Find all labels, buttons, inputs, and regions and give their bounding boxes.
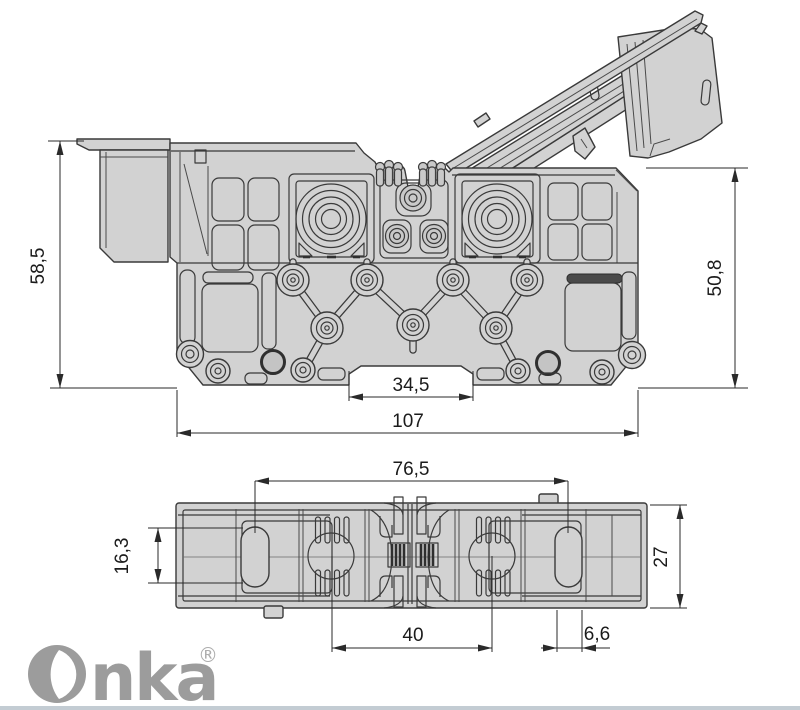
dimension-mounting-slot-width: 6,6 [541,610,610,652]
registered-trademark-symbol: ® [198,643,218,667]
dimension-label-50-8: 50,8 [705,260,726,297]
side-view: 58,5 50,8 34,5 107 [28,11,748,437]
drawing-canvas: 58,5 50,8 34,5 107 [0,0,800,710]
dimension-label-107: 107 [392,411,424,432]
dimension-label-40: 40 [402,625,423,646]
marker-tab-bottom [264,606,283,618]
dimension-label-34-5: 34,5 [393,375,430,396]
mounting-slot-left [241,527,269,587]
dimension-body-height-right: 50,8 [638,168,748,388]
dimension-label-58-5: 58,5 [28,248,49,285]
side-view-body [170,143,646,385]
cover-end-block [618,28,722,158]
left-flange [77,139,170,262]
through-hole-right [537,352,560,375]
dimension-label-27: 27 [651,546,672,567]
dimension-label-76-5: 76,5 [393,459,430,480]
logo-o-icon [28,645,86,703]
through-hole-left [262,351,285,374]
dimension-label-16-3: 16,3 [112,538,133,575]
dimension-label-6-6: 6,6 [584,624,610,645]
hinge-knuckles [376,161,446,187]
dimension-din-notch-width: 34,5 [349,371,473,401]
footer-rule [0,706,800,710]
dimension-overall-depth: 27 [650,505,687,608]
technical-drawing: 58,5 50,8 34,5 107 [0,0,800,710]
top-view: 76,5 16,3 27 40 6,6 [112,459,687,652]
top-view-body [176,494,647,618]
brand-logo: Onka nka ® [28,641,218,710]
mounting-slot-right [555,527,582,587]
